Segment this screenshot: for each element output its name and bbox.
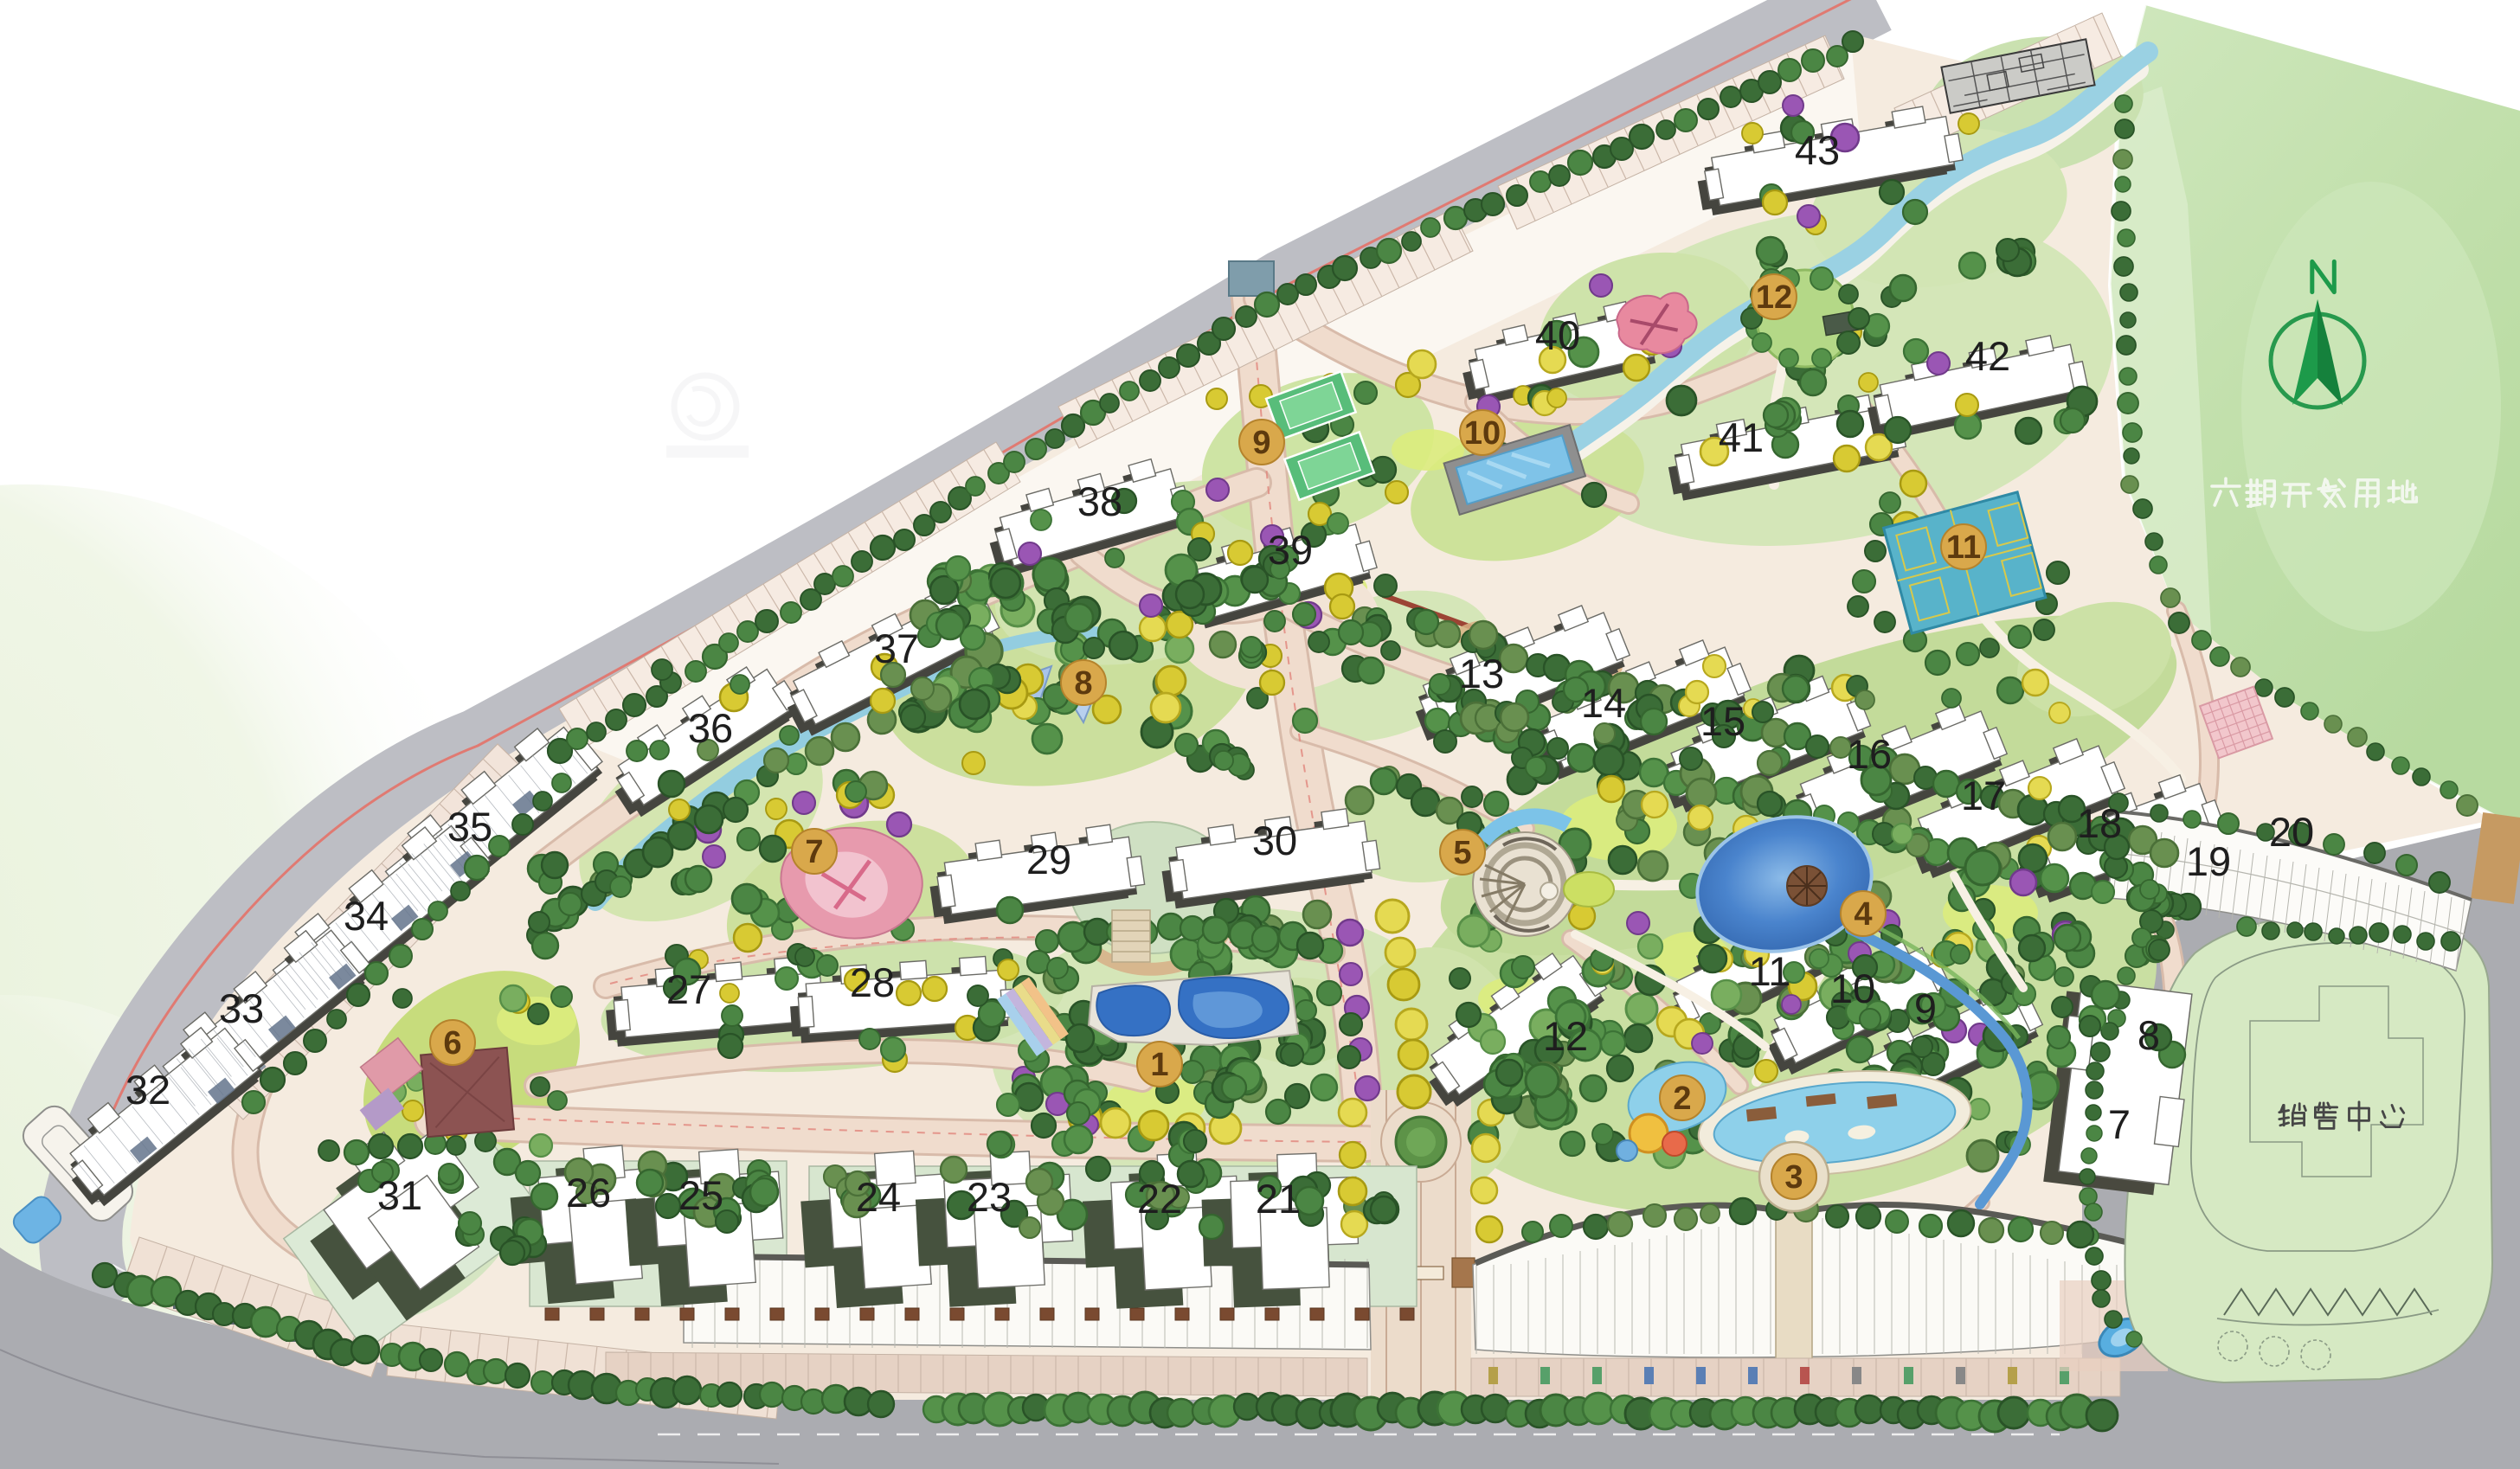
svg-text:43: 43 — [1795, 127, 1840, 173]
svg-text:36: 36 — [688, 705, 733, 751]
svg-text:9: 9 — [1914, 985, 1937, 1031]
svg-text:18: 18 — [2077, 800, 2122, 846]
svg-text:40: 40 — [1535, 312, 1580, 358]
svg-text:16: 16 — [1847, 731, 1892, 777]
svg-text:37: 37 — [874, 625, 919, 671]
svg-text:33: 33 — [219, 985, 264, 1031]
svg-text:5: 5 — [1453, 835, 1471, 871]
svg-text:41: 41 — [1719, 414, 1764, 460]
svg-text:35: 35 — [447, 804, 492, 850]
svg-text:42: 42 — [1965, 333, 2010, 379]
svg-text:10: 10 — [1830, 965, 1875, 1011]
svg-text:10: 10 — [1464, 415, 1501, 452]
svg-text:24: 24 — [856, 1174, 901, 1220]
svg-text:4: 4 — [1854, 896, 1872, 933]
svg-text:8: 8 — [2137, 1012, 2160, 1058]
svg-text:15: 15 — [1700, 698, 1745, 744]
svg-text:38: 38 — [1077, 478, 1122, 524]
svg-text:29: 29 — [1026, 837, 1071, 882]
svg-text:26: 26 — [566, 1170, 611, 1216]
svg-text:19: 19 — [2186, 838, 2231, 884]
svg-text:2: 2 — [1673, 1081, 1691, 1117]
svg-text:20: 20 — [2269, 809, 2314, 855]
svg-text:3: 3 — [1784, 1159, 1803, 1196]
svg-text:31: 31 — [377, 1172, 422, 1218]
svg-text:32: 32 — [125, 1067, 170, 1113]
svg-text:17: 17 — [1961, 773, 2006, 818]
svg-text:11: 11 — [1749, 948, 1791, 994]
svg-text:34: 34 — [344, 893, 389, 939]
svg-text:21: 21 — [1256, 1176, 1301, 1222]
svg-text:22: 22 — [1137, 1176, 1182, 1222]
svg-text:12: 12 — [1756, 279, 1792, 316]
svg-text:11: 11 — [1946, 529, 1981, 566]
svg-text:23: 23 — [967, 1174, 1012, 1220]
svg-text:8: 8 — [1074, 665, 1092, 702]
svg-text:1: 1 — [1150, 1047, 1168, 1083]
svg-text:9: 9 — [1252, 425, 1270, 461]
svg-text:7: 7 — [805, 834, 823, 870]
svg-text:14: 14 — [1581, 680, 1626, 726]
svg-text:28: 28 — [850, 959, 895, 1005]
svg-text:25: 25 — [678, 1172, 723, 1218]
svg-text:30: 30 — [1252, 818, 1297, 863]
svg-text:12: 12 — [1543, 1013, 1588, 1059]
svg-text:13: 13 — [1459, 651, 1504, 696]
svg-text:7: 7 — [2108, 1101, 2131, 1147]
svg-text:27: 27 — [666, 966, 711, 1012]
svg-text:39: 39 — [1268, 527, 1313, 573]
svg-text:6: 6 — [443, 1025, 461, 1062]
